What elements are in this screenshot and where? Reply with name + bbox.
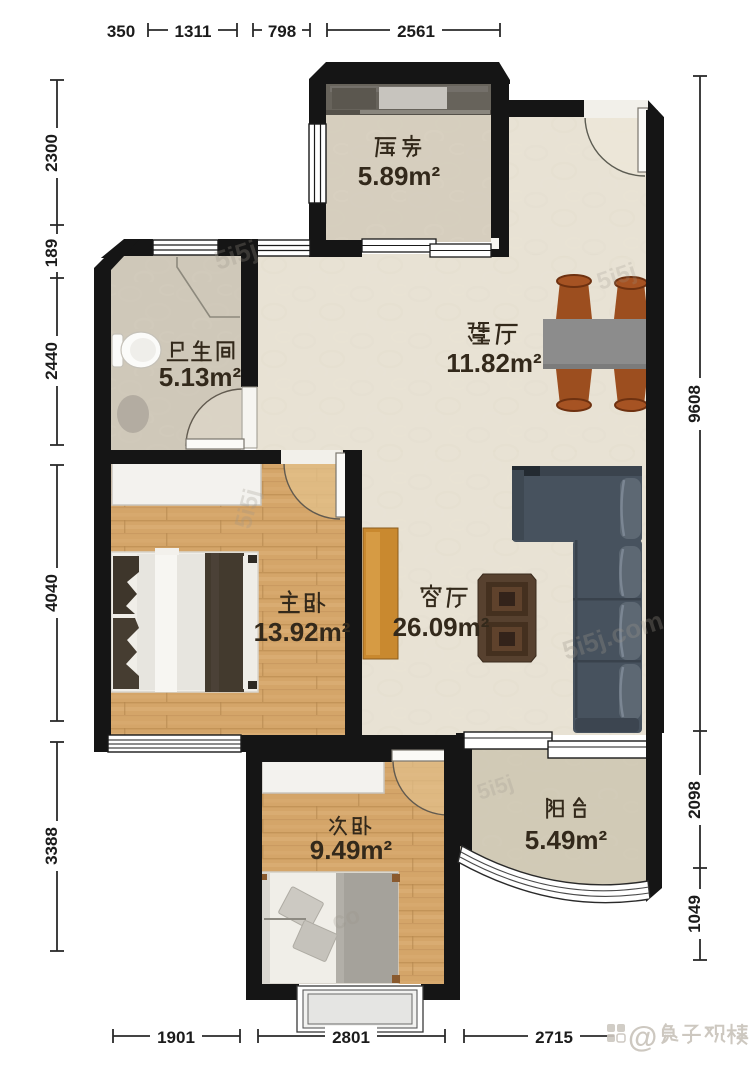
svg-text:2440: 2440 [42,342,61,380]
svg-text:@: @ [628,1021,657,1054]
svg-text:1311: 1311 [175,22,212,41]
svg-text:5.89m²: 5.89m² [358,161,441,191]
svg-text:350: 350 [107,22,135,41]
svg-text:1049: 1049 [685,895,704,933]
svg-text:189: 189 [42,239,61,267]
svg-text:9.49m²: 9.49m² [310,835,393,865]
svg-text:4040: 4040 [42,574,61,612]
svg-text:2561: 2561 [397,22,435,41]
svg-text:2715: 2715 [535,1028,573,1047]
svg-text:5.13m²: 5.13m² [159,362,242,392]
svg-text:11.82m²: 11.82m² [446,348,542,378]
svg-text:9608: 9608 [685,385,704,423]
svg-text:798: 798 [268,22,296,41]
svg-text:1901: 1901 [157,1028,195,1047]
svg-text:5.49m²: 5.49m² [525,825,608,855]
svg-text:13.92m²: 13.92m² [254,617,351,647]
svg-text:3388: 3388 [42,827,61,865]
svg-text:2300: 2300 [42,134,61,172]
svg-text:2098: 2098 [685,781,704,819]
svg-text:26.09m²: 26.09m² [393,612,490,642]
svg-text:2801: 2801 [332,1028,370,1047]
